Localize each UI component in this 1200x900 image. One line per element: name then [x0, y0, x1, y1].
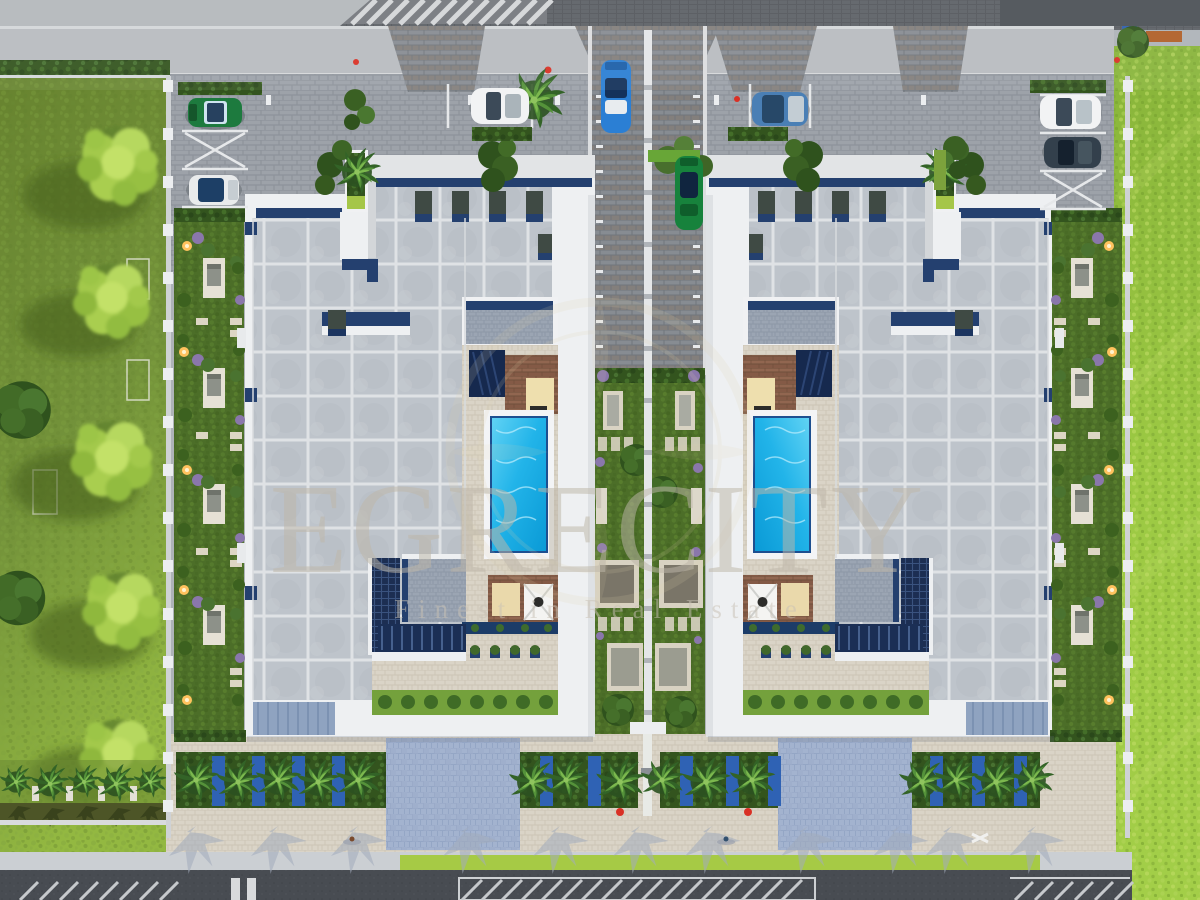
svg-text:Finest in Real Estate: Finest in Real Estate — [394, 594, 806, 624]
svg-text:EGRECITY: EGRECITY — [270, 458, 927, 600]
